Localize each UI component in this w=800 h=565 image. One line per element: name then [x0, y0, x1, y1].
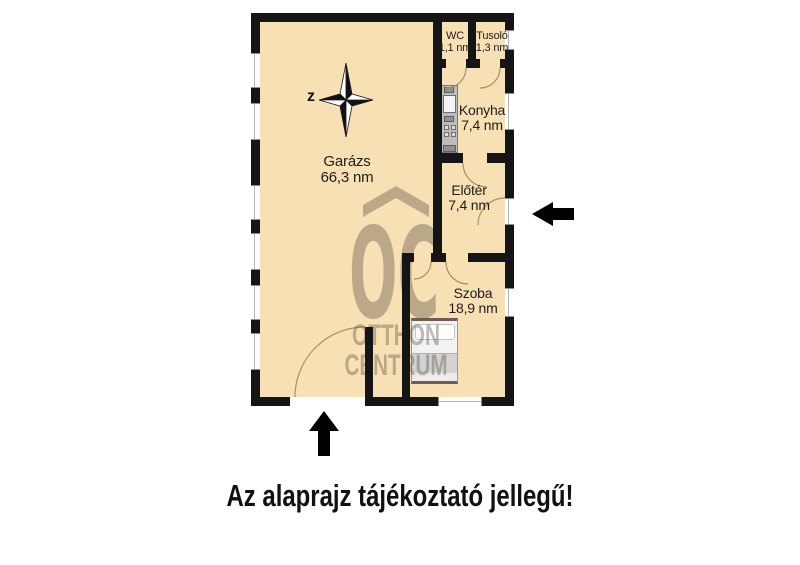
window-room-right: [505, 288, 514, 317]
window: [251, 185, 260, 220]
room-area: 18,9 nm: [443, 301, 503, 316]
room-name: Garázs: [287, 154, 407, 170]
kitchen-appliance-knob: [444, 87, 454, 93]
window: [251, 333, 260, 370]
window: [251, 233, 260, 270]
room-area: 7,4 nm: [439, 198, 499, 213]
room-label-foyer: Előtér 7,4 nm: [439, 183, 499, 213]
window: [251, 53, 260, 88]
wall-wc-bottom: [442, 59, 446, 68]
room-name: Szoba: [443, 286, 503, 301]
wall-kitchen-bottom: [442, 153, 463, 163]
garage-door-opening: [290, 397, 365, 406]
room-name: Előtér: [439, 183, 499, 198]
wall-kitchen-bottom: [487, 153, 505, 163]
floorplan-image: OC OTTHON CENTRUM Garázs 66,3 nm WC 1,1 …: [0, 0, 800, 565]
disclaimer-text: Az alaprajz tájékoztató jellegű!: [227, 478, 574, 513]
wall-room-left: [402, 253, 410, 397]
room-label-kitchen: Konyha 7,4 nm: [452, 103, 512, 133]
bed-blanket-edge: [412, 373, 457, 381]
room-area: 66,3 nm: [287, 170, 407, 186]
room-label-garage: Garázs 66,3 nm: [287, 154, 407, 186]
entrance-arrow-icon: [532, 202, 574, 226]
bed-blanket: [412, 353, 457, 374]
room-label-room: Szoba 18,9 nm: [443, 286, 503, 316]
wall-outer-top: [251, 13, 514, 22]
wall-room-top: [468, 253, 505, 262]
stove-burner: [444, 132, 449, 137]
garage-entry-arrow-icon: [309, 411, 339, 456]
room-area: 7,4 nm: [452, 118, 512, 133]
wall-room-top: [431, 253, 446, 262]
window: [251, 285, 260, 320]
garage-door-leaf: [365, 327, 373, 397]
room-area: 1,3 nm: [467, 42, 517, 54]
room-name: Konyha: [452, 103, 512, 118]
stove-burner: [444, 125, 449, 130]
room-label-shower: Tusoló 1,3 nm: [467, 30, 517, 54]
kitchen-appliance-base: [443, 145, 456, 152]
bed-pillow: [415, 324, 455, 340]
window-room-bottom: [438, 397, 482, 406]
room-name: Tusoló: [467, 30, 517, 42]
entrance-door-opening: [505, 198, 514, 225]
wall-wc-bottom: [500, 59, 505, 68]
wall-wc-bottom: [466, 59, 480, 68]
window: [251, 103, 260, 140]
bed: [411, 318, 458, 384]
